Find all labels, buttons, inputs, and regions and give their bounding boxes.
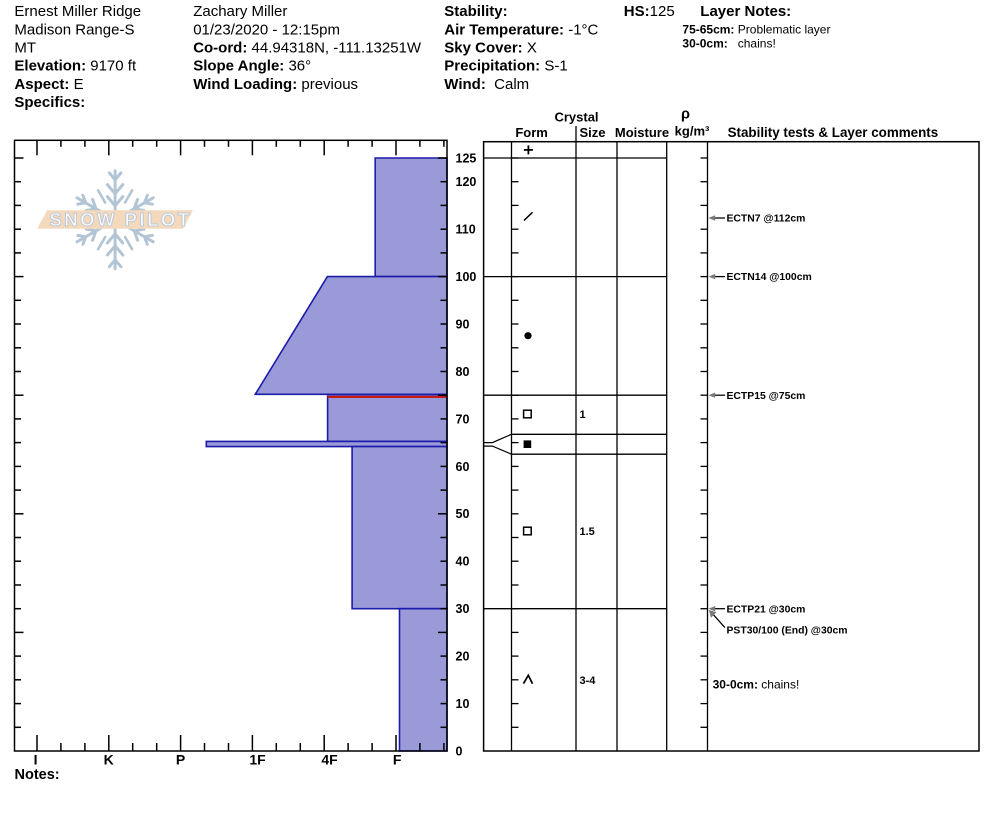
svg-text:80: 80 (456, 365, 470, 379)
svg-text:ECTN7 @112cm: ECTN7 @112cm (727, 214, 806, 225)
svg-text:Co-ord: 44.94318N, -111.13251W: Co-ord: 44.94318N, -111.13251W (193, 40, 422, 57)
svg-text:Layer Notes:: Layer Notes: (700, 3, 791, 20)
svg-text:40: 40 (456, 555, 470, 569)
svg-text:4F: 4F (321, 752, 338, 768)
svg-text:Ernest Miller Ridge: Ernest Miller Ridge (14, 3, 141, 20)
svg-text:01/23/2020 - 12:15pm: 01/23/2020 - 12:15pm (193, 21, 340, 38)
svg-text:30: 30 (456, 602, 470, 616)
svg-text:1F: 1F (249, 752, 266, 768)
svg-text:ECTP15 @75cm: ECTP15 @75cm (727, 391, 806, 402)
svg-text:Crystal: Crystal (554, 110, 598, 125)
svg-text:Notes:: Notes: (15, 767, 60, 783)
svg-text:HS:125: HS:125 (624, 3, 675, 20)
svg-text:30-0cm: chains!: 30-0cm: chains! (713, 678, 800, 692)
svg-text:ρ: ρ (681, 107, 690, 123)
svg-text:Form: Form (515, 125, 548, 140)
svg-text:P: P (176, 752, 185, 768)
svg-text:10: 10 (456, 697, 470, 711)
svg-text:ECTP21 @30cm: ECTP21 @30cm (727, 604, 806, 615)
svg-text:125: 125 (456, 151, 477, 165)
svg-text:F: F (393, 752, 402, 768)
svg-text:MT: MT (14, 40, 36, 57)
svg-text:Madison Range-S: Madison Range-S (14, 21, 134, 38)
svg-text:120: 120 (456, 175, 477, 189)
svg-text:Stability:: Stability: (444, 3, 507, 20)
svg-text:Air Temperature: -1°C: Air Temperature: -1°C (444, 21, 598, 38)
svg-text:Zachary Miller: Zachary Miller (193, 3, 287, 20)
svg-text:Specifics:: Specifics: (14, 94, 85, 111)
svg-text:Precipitation: S-1: Precipitation: S-1 (444, 58, 567, 75)
svg-text:75-65cm: Problematic layer: 75-65cm: Problematic layer (682, 22, 830, 36)
svg-text:SNOW PILOT: SNOW PILOT (49, 209, 191, 230)
svg-text:I: I (34, 752, 38, 768)
svg-text:K: K (104, 752, 114, 768)
svg-text:3-4: 3-4 (580, 675, 597, 687)
svg-text:Elevation: 9170 ft: Elevation: 9170 ft (14, 58, 137, 75)
svg-text:PST30/100 (End) @30cm: PST30/100 (End) @30cm (727, 625, 848, 636)
svg-text:100: 100 (456, 270, 477, 284)
svg-text:Wind: Calm: Wind: Calm (444, 76, 529, 93)
svg-text:Moisture: Moisture (615, 125, 669, 140)
svg-text:30-0cm: chains!: 30-0cm: chains! (682, 36, 775, 50)
svg-text:Slope Angle: 36°: Slope Angle: 36° (193, 58, 311, 75)
svg-text:0: 0 (456, 744, 463, 758)
svg-text:Sky Cover: X: Sky Cover: X (444, 40, 537, 57)
svg-text:kg/m³: kg/m³ (675, 124, 710, 139)
svg-text:60: 60 (456, 460, 470, 474)
svg-text:Aspect: E: Aspect: E (14, 76, 83, 93)
svg-text:50: 50 (456, 507, 470, 521)
svg-text:Wind Loading: previous: Wind Loading: previous (193, 76, 358, 93)
svg-text:1.5: 1.5 (580, 526, 595, 538)
svg-text:90: 90 (456, 317, 470, 331)
svg-text:ECTN14 @100cm: ECTN14 @100cm (727, 272, 812, 283)
svg-text:110: 110 (456, 223, 476, 237)
svg-text:70: 70 (456, 412, 470, 426)
svg-text:Stability tests & Layer commen: Stability tests & Layer comments (728, 125, 939, 140)
svg-text:1: 1 (580, 409, 586, 421)
svg-text:Size: Size (579, 125, 605, 140)
svg-text:20: 20 (456, 650, 470, 664)
